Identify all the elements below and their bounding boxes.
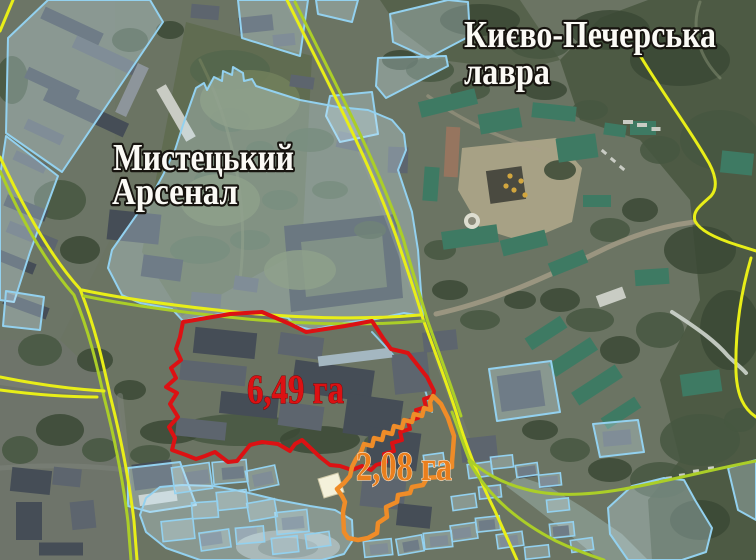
cadastral-parcel — [247, 499, 278, 522]
label-arsenal-line2: Арсенал — [112, 171, 238, 213]
bell-tower-roof — [468, 217, 476, 225]
cadastral-parcel — [216, 489, 248, 510]
tree-canopy — [664, 226, 736, 274]
building — [583, 195, 611, 207]
cadastral-parcel — [275, 509, 309, 534]
cadastral-parcel — [593, 420, 644, 457]
area-label-orange-2-08-ha: 2,08 га — [356, 443, 452, 489]
building — [720, 150, 754, 175]
tree-canopy — [522, 420, 558, 440]
tree-canopy — [432, 280, 468, 300]
cadastral-parcel — [538, 473, 561, 487]
gold-dome — [522, 192, 527, 197]
tree-canopy — [600, 336, 640, 364]
cadastral-parcel — [396, 535, 424, 555]
building — [70, 500, 97, 530]
building — [16, 502, 42, 540]
cadastral-parcel — [524, 545, 549, 559]
building — [52, 467, 82, 488]
tree-canopy — [622, 198, 658, 222]
building — [190, 4, 219, 20]
building — [623, 120, 633, 124]
tree-canopy — [82, 438, 118, 462]
cadastral-parcel — [549, 522, 574, 538]
tree-canopy — [572, 100, 608, 120]
tree-canopy — [640, 136, 680, 164]
satellite-map: Києво-Печерська лавра Мистецький Арсенал… — [0, 0, 756, 560]
tree-canopy — [36, 414, 84, 446]
area-label-red-6-49-ha: 6,49 га — [247, 366, 344, 412]
tree-canopy — [544, 160, 576, 180]
tree-canopy — [550, 438, 590, 462]
building — [10, 467, 52, 495]
gold-dome — [507, 173, 512, 178]
building — [444, 127, 461, 178]
cadastral-parcel — [161, 518, 195, 541]
tree-canopy — [60, 236, 100, 264]
building — [39, 543, 83, 556]
tree-canopy — [566, 308, 614, 332]
map-canvas[interactable]: Києво-Печерська лавра Мистецький Арсенал… — [0, 0, 756, 560]
cadastral-parcel — [489, 361, 560, 421]
cadastral-parcel — [271, 536, 299, 555]
tree-canopy — [2, 436, 38, 464]
cadastral-parcel — [450, 522, 478, 541]
cadastral-parcel — [199, 529, 231, 551]
cadastral-parcel — [546, 498, 569, 512]
gold-dome — [518, 178, 523, 183]
gold-dome — [503, 183, 508, 188]
cadastral-parcel — [305, 531, 331, 548]
cadastral-parcel — [235, 526, 264, 544]
building — [422, 167, 439, 202]
cadastral-parcel — [363, 539, 393, 558]
gold-dome — [511, 187, 516, 192]
cadastral-parcel — [423, 531, 453, 550]
tree-canopy — [460, 310, 500, 330]
cadastral-parcel — [490, 455, 513, 469]
cadastral-parcel — [191, 501, 218, 519]
building — [652, 127, 661, 131]
building — [396, 503, 432, 528]
building — [634, 268, 669, 286]
cadastral-parcel — [451, 493, 477, 510]
label-lavra-line2: лавра — [464, 51, 550, 93]
tree-canopy — [540, 288, 580, 312]
cadastral-parcel — [171, 462, 212, 493]
tree-canopy — [18, 334, 62, 366]
cadastral-parcel — [3, 291, 44, 330]
cadastral-parcel — [515, 463, 538, 478]
label-lavra-line1: Києво-Печерська — [464, 14, 716, 56]
building — [637, 123, 647, 127]
tree-canopy — [588, 458, 632, 482]
